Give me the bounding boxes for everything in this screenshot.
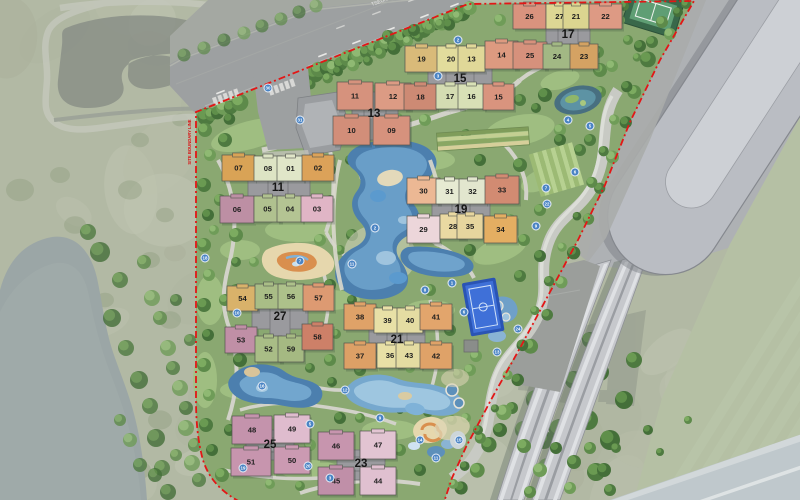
svg-text:01: 01: [286, 164, 295, 173]
svg-text:20: 20: [306, 464, 311, 469]
svg-text:52: 52: [264, 345, 272, 354]
svg-text:35: 35: [466, 222, 475, 231]
svg-text:27: 27: [555, 12, 563, 21]
svg-text:30: 30: [419, 187, 427, 196]
svg-text:25: 25: [526, 51, 535, 60]
svg-text:14: 14: [418, 438, 423, 443]
svg-text:04: 04: [286, 205, 295, 214]
svg-text:15: 15: [457, 438, 462, 443]
svg-text:56: 56: [287, 292, 295, 301]
svg-text:24: 24: [553, 52, 562, 61]
svg-text:41: 41: [432, 313, 441, 322]
svg-text:25: 25: [264, 439, 277, 451]
svg-text:11: 11: [351, 92, 360, 101]
svg-text:47: 47: [374, 441, 382, 450]
svg-text:22: 22: [545, 202, 550, 207]
svg-text:27: 27: [274, 311, 287, 323]
svg-text:36: 36: [386, 351, 394, 360]
svg-text:03: 03: [313, 205, 321, 214]
svg-text:19: 19: [455, 204, 468, 216]
svg-text:54: 54: [238, 294, 247, 303]
svg-text:13: 13: [495, 350, 500, 355]
svg-text:58: 58: [313, 333, 321, 342]
svg-text:23: 23: [580, 52, 588, 61]
svg-text:19: 19: [241, 466, 246, 471]
svg-text:31: 31: [298, 118, 303, 123]
svg-text:49: 49: [288, 425, 296, 434]
svg-text:59: 59: [287, 345, 295, 354]
svg-text:33: 33: [498, 186, 506, 195]
svg-text:17: 17: [446, 92, 454, 101]
svg-text:13: 13: [467, 55, 475, 64]
svg-text:29: 29: [419, 225, 427, 234]
svg-text:18: 18: [203, 256, 208, 261]
svg-text:46: 46: [332, 442, 340, 451]
svg-text:10: 10: [347, 126, 355, 135]
svg-text:07: 07: [234, 164, 242, 173]
svg-text:08: 08: [264, 164, 272, 173]
svg-text:05: 05: [263, 205, 272, 214]
svg-text:20: 20: [447, 55, 455, 64]
svg-text:11: 11: [350, 262, 355, 267]
svg-text:50: 50: [288, 456, 296, 465]
svg-text:34: 34: [496, 225, 505, 234]
svg-text:19: 19: [417, 55, 425, 64]
svg-text:44: 44: [374, 477, 383, 486]
svg-text:02: 02: [314, 164, 322, 173]
svg-text:11: 11: [434, 456, 439, 461]
svg-text:39: 39: [383, 316, 391, 325]
svg-text:12: 12: [389, 92, 397, 101]
svg-text:38: 38: [356, 313, 364, 322]
svg-text:11: 11: [272, 182, 285, 194]
svg-text:32: 32: [468, 187, 476, 196]
svg-text:15: 15: [494, 93, 503, 102]
svg-text:12: 12: [343, 388, 348, 393]
svg-text:55: 55: [264, 292, 273, 301]
svg-text:13: 13: [368, 108, 381, 120]
svg-text:51: 51: [247, 458, 256, 467]
svg-text:14: 14: [497, 51, 506, 60]
svg-text:40: 40: [406, 316, 414, 325]
svg-text:SITE BOUNDARY LINE: SITE BOUNDARY LINE: [187, 119, 192, 164]
svg-text:16: 16: [467, 92, 475, 101]
svg-text:22: 22: [601, 12, 609, 21]
svg-text:06: 06: [233, 205, 241, 214]
svg-text:17: 17: [562, 29, 575, 41]
svg-text:21: 21: [391, 334, 404, 346]
svg-text:31: 31: [445, 187, 454, 196]
svg-text:53: 53: [237, 336, 245, 345]
svg-text:10: 10: [235, 311, 240, 316]
svg-text:48: 48: [248, 426, 256, 435]
svg-text:21: 21: [572, 12, 581, 21]
svg-text:42: 42: [432, 352, 440, 361]
svg-text:43: 43: [405, 351, 413, 360]
svg-text:16: 16: [260, 384, 265, 389]
svg-text:57: 57: [314, 294, 322, 303]
svg-text:37: 37: [356, 352, 364, 361]
svg-text:26: 26: [525, 12, 533, 21]
svg-text:15: 15: [454, 73, 467, 85]
svg-text:24: 24: [516, 327, 521, 332]
svg-text:09: 09: [387, 126, 395, 135]
svg-text:23: 23: [355, 458, 368, 470]
svg-text:30: 30: [266, 86, 271, 91]
svg-text:18: 18: [416, 93, 424, 102]
svg-text:28: 28: [449, 222, 457, 231]
